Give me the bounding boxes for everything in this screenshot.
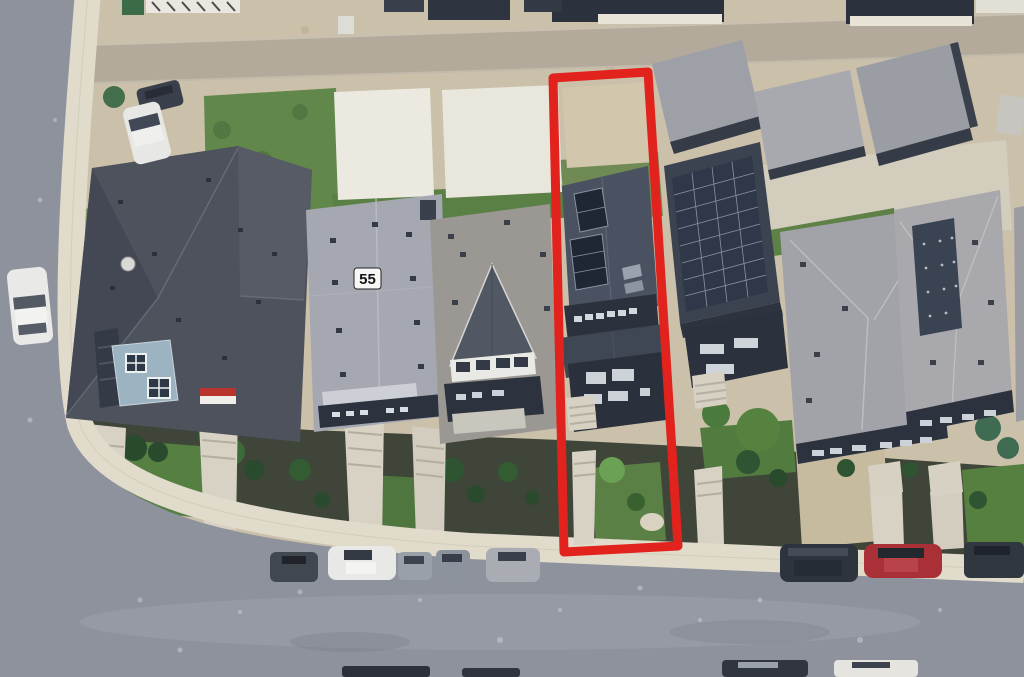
white-trailer (976, 0, 1024, 13)
solar-panel-array-large (672, 156, 768, 312)
walkway (694, 466, 724, 546)
parked-truck-white (834, 660, 918, 677)
parked-car (462, 668, 520, 677)
rear-building-roof (428, 0, 510, 20)
parked-car (384, 0, 424, 12)
front-porch (928, 461, 963, 497)
gable-house (420, 200, 558, 444)
parked-car (398, 552, 432, 580)
roof-facet (238, 146, 312, 300)
construction-fence (146, 0, 240, 13)
front-grass (962, 464, 1024, 550)
road-stain (670, 620, 830, 644)
parking-pad (334, 88, 434, 200)
house-55 (306, 194, 448, 432)
solar-panel-array (570, 188, 608, 290)
solar-panel-patch (912, 218, 962, 336)
rear-building-porch (850, 16, 972, 26)
rear-building-porch (598, 14, 722, 24)
aerial-scene: 55 (0, 0, 1024, 677)
porch-sign (200, 388, 236, 404)
parked-car (964, 542, 1024, 578)
parked-car (486, 548, 540, 582)
parked-car (328, 546, 396, 580)
chimney-vent (121, 257, 135, 271)
parked-car (338, 16, 354, 34)
rear-addition (420, 200, 436, 220)
parked-suv (722, 660, 808, 677)
front-porch (692, 371, 727, 409)
aerial-photo: 55 (0, 0, 1024, 677)
green-bin (122, 0, 144, 15)
parked-car (436, 550, 470, 580)
corner-house (66, 146, 312, 442)
parked-car (524, 0, 562, 12)
lot-dirt-parking-area (562, 82, 656, 168)
walkway (930, 488, 964, 550)
sandy-patch (640, 513, 664, 531)
parked-car-red (864, 544, 942, 578)
front-porch (868, 461, 903, 497)
blue-gable-facade (112, 340, 178, 406)
parked-suv-dark (780, 544, 858, 582)
parked-car-white-left-road (6, 266, 54, 346)
parking-pad (442, 85, 562, 198)
house-number-label: 55 (354, 268, 381, 289)
parked-car (342, 666, 430, 677)
road-stain (290, 632, 410, 652)
walkway (870, 488, 904, 549)
shrub (103, 86, 125, 108)
parked-car (270, 552, 318, 582)
house-number-text: 55 (359, 271, 376, 288)
